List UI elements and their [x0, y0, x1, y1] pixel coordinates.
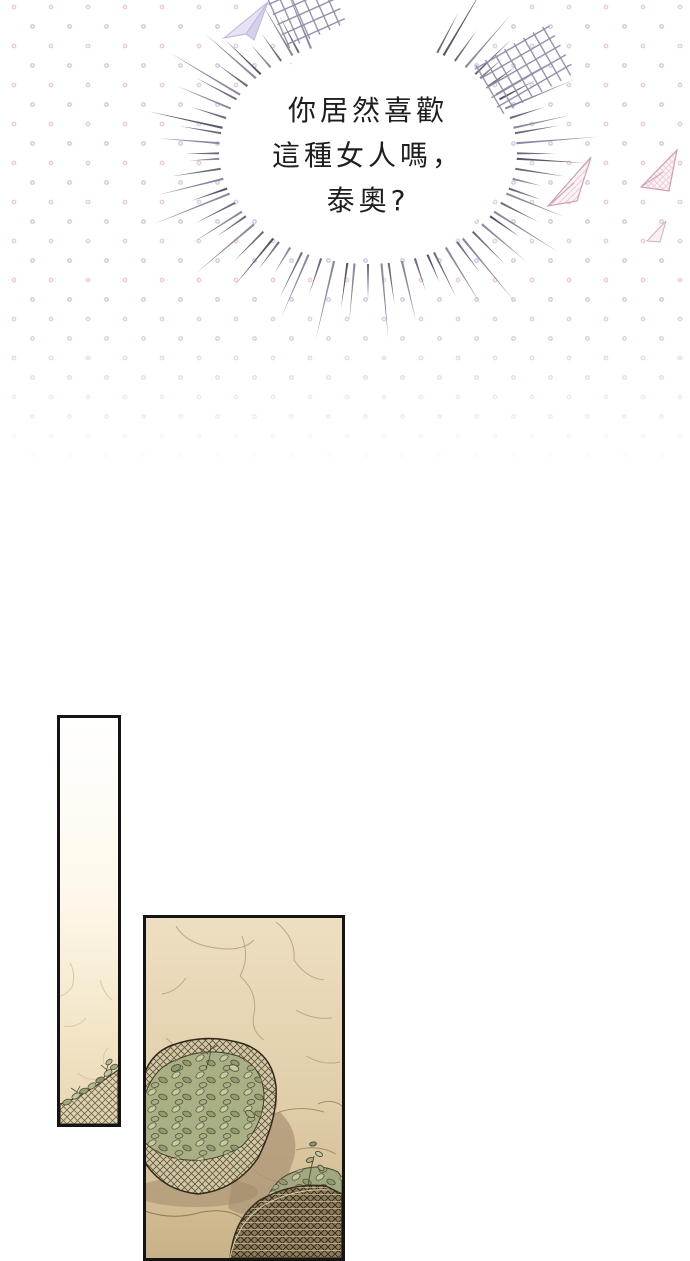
- panel-tall: [57, 715, 121, 1127]
- paper-plane-icon: [224, 2, 268, 40]
- paper-plane-icon: [647, 221, 666, 242]
- panel-wide: [143, 915, 345, 1261]
- speech-bubble-text: 你居然喜歡 這種女人嗎， 泰奧?: [218, 88, 518, 223]
- paper-plane-icon: [641, 150, 677, 191]
- panel-tall-art: [60, 718, 118, 1124]
- panel-wide-art: [146, 918, 342, 1258]
- speech-line: 泰奧?: [218, 178, 518, 223]
- speech-line: 這種女人嗎，: [218, 133, 518, 178]
- paper-plane-icon: [548, 157, 591, 206]
- speech-line: 你居然喜歡: [218, 88, 518, 133]
- comic-page: { "speech_bubble": { "lines": ["你居然喜歡", …: [0, 0, 690, 1240]
